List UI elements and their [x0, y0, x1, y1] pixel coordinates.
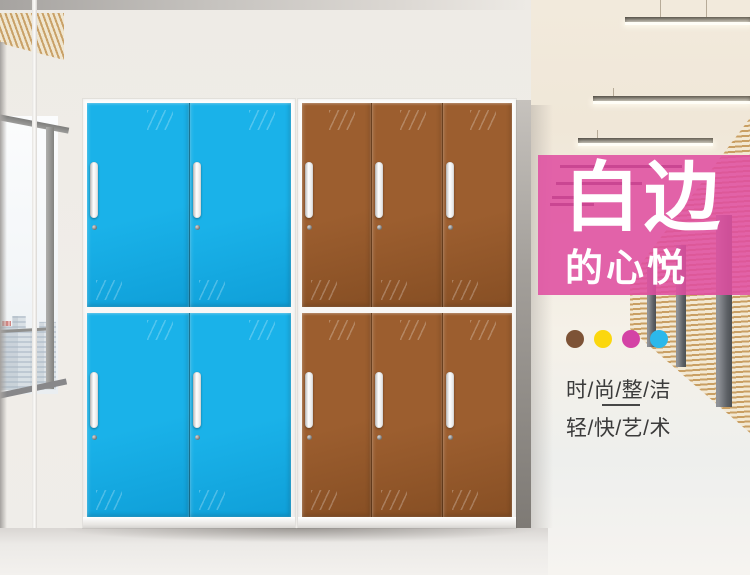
- keyhole: [448, 225, 453, 230]
- brown-locker-row: [302, 103, 512, 307]
- shine-mark: [329, 320, 355, 340]
- shine-mark: [147, 110, 173, 130]
- light-wire: [613, 88, 614, 96]
- door-handle: [305, 372, 313, 428]
- slogan-line-1: 时/尚/整/洁: [566, 374, 671, 404]
- shine-mark: [249, 320, 275, 340]
- shine-mark: [199, 280, 225, 300]
- shine-mark: [470, 110, 496, 130]
- wall-corner-edge: [0, 42, 7, 575]
- color-dot-yellow: [594, 330, 612, 348]
- ceiling-edge: [0, 0, 535, 10]
- door-handle: [375, 372, 383, 428]
- brown-locker-door: [371, 313, 441, 517]
- cabinet-side-panel: [516, 100, 531, 528]
- brown-locker-door: [302, 103, 371, 307]
- blue-locker: [83, 99, 295, 528]
- shine-mark: [329, 110, 355, 130]
- shine-mark: [381, 280, 407, 300]
- pendant-light-glow: [578, 143, 713, 146]
- door-handle: [446, 372, 454, 428]
- blue-locker-door: [189, 313, 292, 517]
- shine-mark: [400, 110, 426, 130]
- window-frame-right: [46, 127, 54, 389]
- shine-mark: [470, 320, 496, 340]
- keyhole: [92, 435, 97, 440]
- keyhole: [377, 435, 382, 440]
- color-dot-row: [566, 330, 668, 348]
- light-wire: [660, 0, 661, 17]
- banner-subtitle: 的心悦: [565, 250, 688, 288]
- keyhole: [307, 435, 312, 440]
- slogan-divider: [602, 404, 640, 406]
- shine-mark: [96, 280, 122, 300]
- keyhole: [92, 225, 97, 230]
- brown-locker-door: [442, 313, 512, 517]
- color-dot-cyan: [650, 330, 668, 348]
- brown-locker: [298, 99, 516, 528]
- locker-promo-banner: 白边 的心悦 时/尚/整/洁 轻/快/艺/术: [0, 0, 750, 575]
- shine-mark: [400, 320, 426, 340]
- blue-locker-row: [87, 103, 291, 307]
- shine-mark: [311, 490, 337, 510]
- slogan-line-2: 轻/快/艺/术: [566, 412, 671, 442]
- keyhole: [448, 435, 453, 440]
- door-handle: [446, 162, 454, 218]
- shine-mark: [452, 490, 478, 510]
- blue-locker-door: [189, 103, 292, 307]
- color-dot-magenta: [622, 330, 640, 348]
- color-dot-brown: [566, 330, 584, 348]
- door-handle: [305, 162, 313, 218]
- door-handle: [193, 372, 201, 428]
- shine-mark: [96, 490, 122, 510]
- keyhole: [195, 435, 200, 440]
- brown-locker-door: [302, 313, 371, 517]
- door-handle: [375, 162, 383, 218]
- keyhole: [307, 225, 312, 230]
- brown-locker-row: [302, 313, 512, 517]
- door-handle: [90, 162, 98, 218]
- window-mullion: [32, 0, 37, 575]
- blue-locker-door: [87, 313, 189, 517]
- shine-mark: [147, 320, 173, 340]
- shine-mark: [199, 490, 225, 510]
- cabinet-shadow: [66, 528, 536, 542]
- shine-mark: [311, 280, 337, 300]
- brown-locker-plinth: [298, 517, 516, 528]
- brown-locker-door: [442, 103, 512, 307]
- door-handle: [90, 372, 98, 428]
- keyhole: [377, 225, 382, 230]
- pendant-light-glow: [593, 101, 750, 104]
- shine-mark: [381, 490, 407, 510]
- banner-title: 白边: [564, 161, 724, 237]
- brown-locker-door: [371, 103, 441, 307]
- light-wire: [706, 0, 707, 17]
- light-wire: [597, 130, 598, 138]
- door-handle: [193, 162, 201, 218]
- blue-locker-plinth: [83, 517, 295, 528]
- blue-locker-row: [87, 313, 291, 517]
- pendant-light-glow: [625, 22, 750, 25]
- promo-banner: 白边 的心悦: [538, 155, 750, 295]
- keyhole: [195, 225, 200, 230]
- blue-locker-door: [87, 103, 189, 307]
- shine-mark: [249, 110, 275, 130]
- shine-mark: [452, 280, 478, 300]
